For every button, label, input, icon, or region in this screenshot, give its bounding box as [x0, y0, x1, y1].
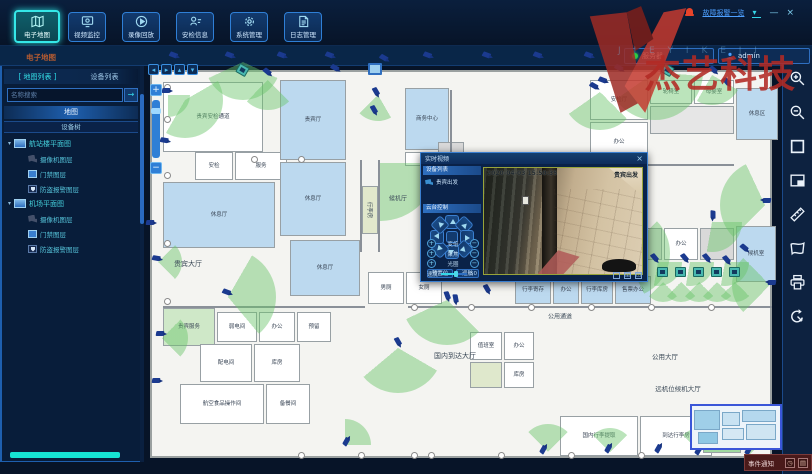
popup-device-section-header: 设备列表: [423, 166, 481, 175]
sidebar-scrollbar-track: [140, 66, 144, 462]
overview-minimap[interactable]: [690, 404, 782, 450]
username: admin: [738, 52, 760, 60]
dark-object: [602, 259, 636, 272]
glass-storefront: [484, 168, 544, 274]
nav-label: 录像回放: [128, 29, 154, 39]
pan-right-button[interactable]: ▸: [161, 64, 172, 75]
tree-node-map[interactable]: ▾航站楼平面图: [2, 136, 140, 151]
app-window: 电子地图 视频监控 录像回放 安检信息 系统管理 日志管理 故障报警一览 ▾ —…: [0, 0, 812, 474]
device-camera-icon: [425, 179, 433, 185]
person-list-icon: [189, 15, 202, 28]
nav-system-button[interactable]: 系统管理: [230, 12, 268, 42]
popup-view-mode-icons: ⊞ ⊡: [613, 272, 642, 279]
focus-minus-button[interactable]: −: [470, 249, 479, 258]
camera-icon[interactable]: [708, 211, 717, 223]
camera-icon[interactable]: [450, 294, 461, 307]
camera-icon[interactable]: [159, 136, 172, 147]
tab-device-list[interactable]: 设备列表: [71, 69, 138, 84]
event-notification-bar: 事件通知 ◷ ▤: [744, 454, 812, 471]
zoom-plus-button[interactable]: +: [427, 239, 436, 248]
focus-label: 聚焦: [447, 250, 458, 258]
nav-label: 视频监控: [74, 29, 100, 39]
sidebar-horizontal-scrollbar[interactable]: [10, 452, 120, 458]
alarm-overview-link[interactable]: 故障报警一览: [702, 8, 744, 18]
zoom-slider-thumb[interactable]: [151, 108, 161, 114]
minimap-block: [698, 432, 718, 444]
left-sidebar: [地图列表] 设备列表 → 地图 设备树 ▾航站楼平面图摄像机图层门禁图层防盗报…: [0, 66, 140, 462]
tree-layer-item[interactable]: 门禁图层: [2, 166, 140, 181]
camera-icon: [28, 215, 37, 223]
tree-layer-item[interactable]: 摄像机图层: [2, 211, 140, 226]
tool-zoom-out-icon[interactable]: [789, 103, 807, 121]
camera-icon[interactable]: [675, 267, 686, 277]
iris-minus-button[interactable]: −: [470, 259, 479, 268]
user-account[interactable]: admin: [718, 48, 810, 64]
camera-icon[interactable]: [729, 267, 740, 277]
nav-label: 系统管理: [236, 29, 262, 39]
focus-plus-button[interactable]: +: [427, 249, 436, 258]
camera-icon[interactable]: [368, 63, 382, 75]
close-button[interactable]: ×: [786, 9, 794, 18]
collapse-icon[interactable]: ▾: [752, 9, 761, 18]
user-icon: [726, 52, 734, 60]
online-status-dot: [632, 53, 638, 59]
iris-label: 光圈: [447, 260, 458, 268]
zoom-slider-track[interactable]: [152, 100, 160, 158]
popup-title: 实时视频: [425, 154, 449, 163]
section-header-device-tree[interactable]: 设备树: [4, 121, 138, 133]
iris-plus-button[interactable]: +: [427, 259, 436, 268]
osd-timestamp: 2020-04-03 15:50:35: [487, 170, 557, 177]
zoom-minus-button[interactable]: −: [470, 239, 479, 248]
nav-label: 电子地图: [24, 29, 50, 39]
speed-slider-thumb[interactable]: [454, 271, 458, 277]
camera-icon[interactable]: [146, 219, 158, 228]
camera-icon[interactable]: [151, 254, 164, 265]
door-icon: [28, 230, 37, 238]
server-label: 服务器: [642, 51, 663, 61]
tool-zoom-in-icon[interactable]: [789, 69, 807, 87]
camera-icon[interactable]: [764, 277, 776, 286]
nav-label: 安检信息: [182, 29, 208, 39]
tree-layer-item[interactable]: 防盗报警图层: [2, 181, 140, 196]
shield-icon: [28, 245, 37, 253]
grid-view-icon[interactable]: ⊞: [624, 272, 631, 279]
pip-view-icon[interactable]: ⊡: [635, 272, 642, 279]
single-view-icon[interactable]: [613, 272, 620, 279]
camera-icon[interactable]: [657, 267, 668, 277]
speed-label: 速度: [427, 270, 438, 278]
ptz-iris-row: + 光圈 −: [427, 259, 479, 268]
device-tree: ▾航站楼平面图摄像机图层门禁图层防盗报警图层▾机场平面图摄像机图层门禁图层防盗报…: [2, 136, 140, 256]
tree-layer-item[interactable]: 门禁图层: [2, 226, 140, 241]
tool-measure-icon[interactable]: [789, 205, 807, 223]
camera-icon[interactable]: [156, 330, 168, 339]
camera-icon[interactable]: [152, 377, 164, 386]
tab-map-list[interactable]: [地图列表]: [4, 69, 71, 84]
live-video-popup: 实时视频 × 设备列表 贵宾出发 云台控制 + 变倍 − + 聚焦 − + 光圈…: [420, 152, 648, 282]
breadcrumb: 电子地图: [26, 52, 56, 63]
ptz-speed-control: 速度 50: [427, 270, 481, 278]
tool-polygon-icon[interactable]: [789, 239, 807, 257]
alarm-bell-icon: [685, 8, 694, 18]
camera-icon[interactable]: [162, 87, 174, 96]
ptz-section-header: 云台控制: [423, 204, 481, 213]
popup-device-item[interactable]: 贵宾出发: [425, 178, 458, 186]
minimize-button[interactable]: —: [769, 9, 778, 18]
emap-icon: [31, 15, 44, 28]
event-bar-label: 事件通知: [748, 458, 782, 468]
tool-full-extent-icon[interactable]: [789, 137, 807, 155]
map-thumbnail-icon: [14, 199, 26, 208]
pan-up-button[interactable]: ▴: [174, 64, 185, 75]
ptz-zoom-row: + 变倍 −: [427, 239, 479, 248]
popup-close-icon[interactable]: ×: [636, 155, 643, 163]
zoom-label: 变倍: [447, 240, 458, 248]
sidebar-tabs: [地图列表] 设备列表: [4, 69, 138, 84]
tool-pan-select-icon[interactable]: [789, 307, 807, 325]
device-name: 贵宾出发: [436, 178, 458, 186]
top-nav-bar: 电子地图 视频监控 录像回放 安检信息 系统管理 日志管理: [0, 0, 812, 46]
zoom-out-button[interactable]: −: [150, 162, 162, 174]
tree-layer-item[interactable]: 防盗报警图层: [2, 241, 140, 256]
nav-security-info-button[interactable]: 安检信息: [176, 12, 214, 42]
search-input[interactable]: [7, 88, 123, 102]
event-list-icon[interactable]: ▤: [798, 458, 808, 468]
tree-node-map[interactable]: ▾机场平面图: [2, 196, 140, 211]
event-history-icon[interactable]: ◷: [785, 458, 795, 468]
speed-slider-track[interactable]: [441, 273, 467, 275]
camera-icon[interactable]: [759, 195, 771, 204]
shield-icon: [28, 185, 37, 193]
gear-icon: [243, 15, 256, 28]
search-button[interactable]: →: [124, 88, 138, 102]
nav-video-button[interactable]: 视频监控: [68, 12, 106, 42]
zoom-in-button[interactable]: +: [150, 84, 162, 96]
popup-titlebar[interactable]: 实时视频 ×: [421, 153, 647, 164]
live-video-frame[interactable]: 2020-04-03 15:50:35 贵宾出发: [483, 167, 643, 275]
camera-icon[interactable]: [711, 267, 722, 277]
pan-down-button[interactable]: ▾: [187, 64, 198, 75]
nav-emap-button[interactable]: 电子地图: [14, 10, 60, 43]
sign-on-glass: [522, 196, 529, 205]
pan-left-button[interactable]: ◂: [148, 64, 159, 75]
sidebar-scrollbar-thumb[interactable]: [140, 94, 144, 224]
osd-camera-name: 贵宾出发: [614, 170, 638, 179]
map-thumbnail-icon: [14, 139, 26, 148]
tool-print-icon[interactable]: [789, 273, 807, 291]
server-status: 服务器: [624, 48, 714, 64]
nav-log-button[interactable]: 日志管理: [284, 12, 322, 42]
minimap-block: [694, 410, 720, 430]
minimap-block: [722, 412, 740, 426]
playback-icon: [135, 15, 148, 28]
map-tools-toolbar: [782, 55, 812, 474]
nav-label: 日志管理: [290, 29, 316, 39]
camera-icon[interactable]: [693, 267, 704, 277]
minimap-block: [746, 424, 776, 440]
document-icon: [297, 15, 310, 28]
titlebar-controls: 故障报警一览 ▾ — ×: [685, 8, 794, 18]
door-icon: [28, 170, 37, 178]
speed-value: 50: [470, 271, 477, 277]
section-header-map[interactable]: 地图: [4, 106, 138, 119]
tree-layer-item[interactable]: 摄像机图层: [2, 151, 140, 166]
camera-icon: [28, 155, 37, 163]
nav-playback-button[interactable]: 录像回放: [122, 12, 160, 42]
tool-overview-icon[interactable]: [789, 171, 807, 189]
minimap-block: [742, 410, 776, 422]
video-monitor-icon: [81, 15, 94, 28]
minimap-block: [722, 428, 744, 440]
ptz-focus-row: + 聚焦 −: [427, 249, 479, 258]
